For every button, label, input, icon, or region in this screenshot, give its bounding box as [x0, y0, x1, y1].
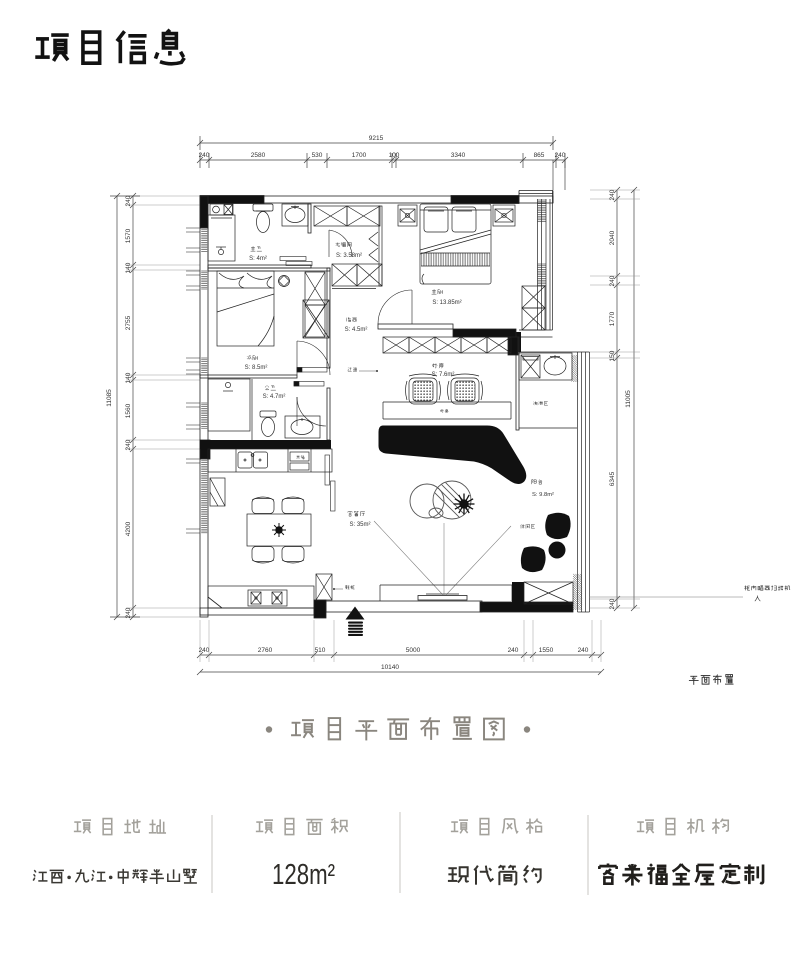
svg-text:128m²: 128m² — [272, 859, 335, 891]
svg-text:140: 140 — [125, 262, 132, 273]
svg-text:100: 100 — [389, 152, 400, 159]
svg-text:240: 240 — [125, 195, 132, 206]
svg-text:240: 240 — [609, 598, 616, 609]
svg-text:240: 240 — [609, 275, 616, 286]
svg-text:240: 240 — [125, 439, 132, 450]
svg-text:2580: 2580 — [251, 152, 266, 159]
svg-text:10140: 10140 — [381, 664, 399, 671]
svg-text:240: 240 — [578, 647, 589, 654]
svg-text:240: 240 — [609, 189, 616, 200]
svg-text:S: 8.5m²: S: 8.5m² — [245, 365, 268, 371]
svg-text:1550: 1550 — [539, 647, 554, 654]
svg-text:S: 13.85m²: S: 13.85m² — [432, 300, 461, 306]
svg-text:S: 4m²: S: 4m² — [249, 256, 267, 262]
svg-text:240: 240 — [508, 647, 519, 654]
svg-text:510: 510 — [315, 647, 326, 654]
svg-text:9215: 9215 — [369, 135, 384, 142]
svg-text:1700: 1700 — [352, 152, 367, 159]
svg-text:S: 4.5m²: S: 4.5m² — [345, 327, 368, 333]
svg-text:150: 150 — [609, 350, 616, 361]
svg-text:5000: 5000 — [406, 647, 421, 654]
svg-text:4200: 4200 — [125, 521, 132, 536]
svg-text:6345: 6345 — [609, 471, 616, 486]
svg-text:1560: 1560 — [125, 403, 132, 418]
svg-text:1570: 1570 — [125, 228, 132, 243]
svg-text:S: 7.6m²: S: 7.6m² — [432, 372, 455, 378]
svg-text:S: 35m²: S: 35m² — [349, 522, 370, 528]
svg-text:865: 865 — [534, 152, 545, 159]
svg-text:2760: 2760 — [258, 647, 273, 654]
svg-text:11005: 11005 — [625, 390, 632, 408]
svg-text:240: 240 — [125, 607, 132, 618]
svg-text:1770: 1770 — [609, 311, 616, 326]
svg-text:S: 3.58m²: S: 3.58m² — [336, 253, 362, 259]
svg-text:S: 4.7m²: S: 4.7m² — [263, 394, 286, 400]
svg-text:240: 240 — [199, 647, 210, 654]
svg-text:2040: 2040 — [609, 230, 616, 245]
svg-text:240: 240 — [199, 152, 210, 159]
svg-text:2755: 2755 — [125, 315, 132, 330]
svg-text:240: 240 — [555, 152, 566, 159]
svg-text:S: 9.8m²: S: 9.8m² — [532, 492, 554, 498]
svg-text:530: 530 — [312, 152, 323, 159]
svg-text:3340: 3340 — [451, 152, 466, 159]
svg-text:140: 140 — [125, 372, 132, 383]
svg-text:11085: 11085 — [106, 389, 113, 407]
